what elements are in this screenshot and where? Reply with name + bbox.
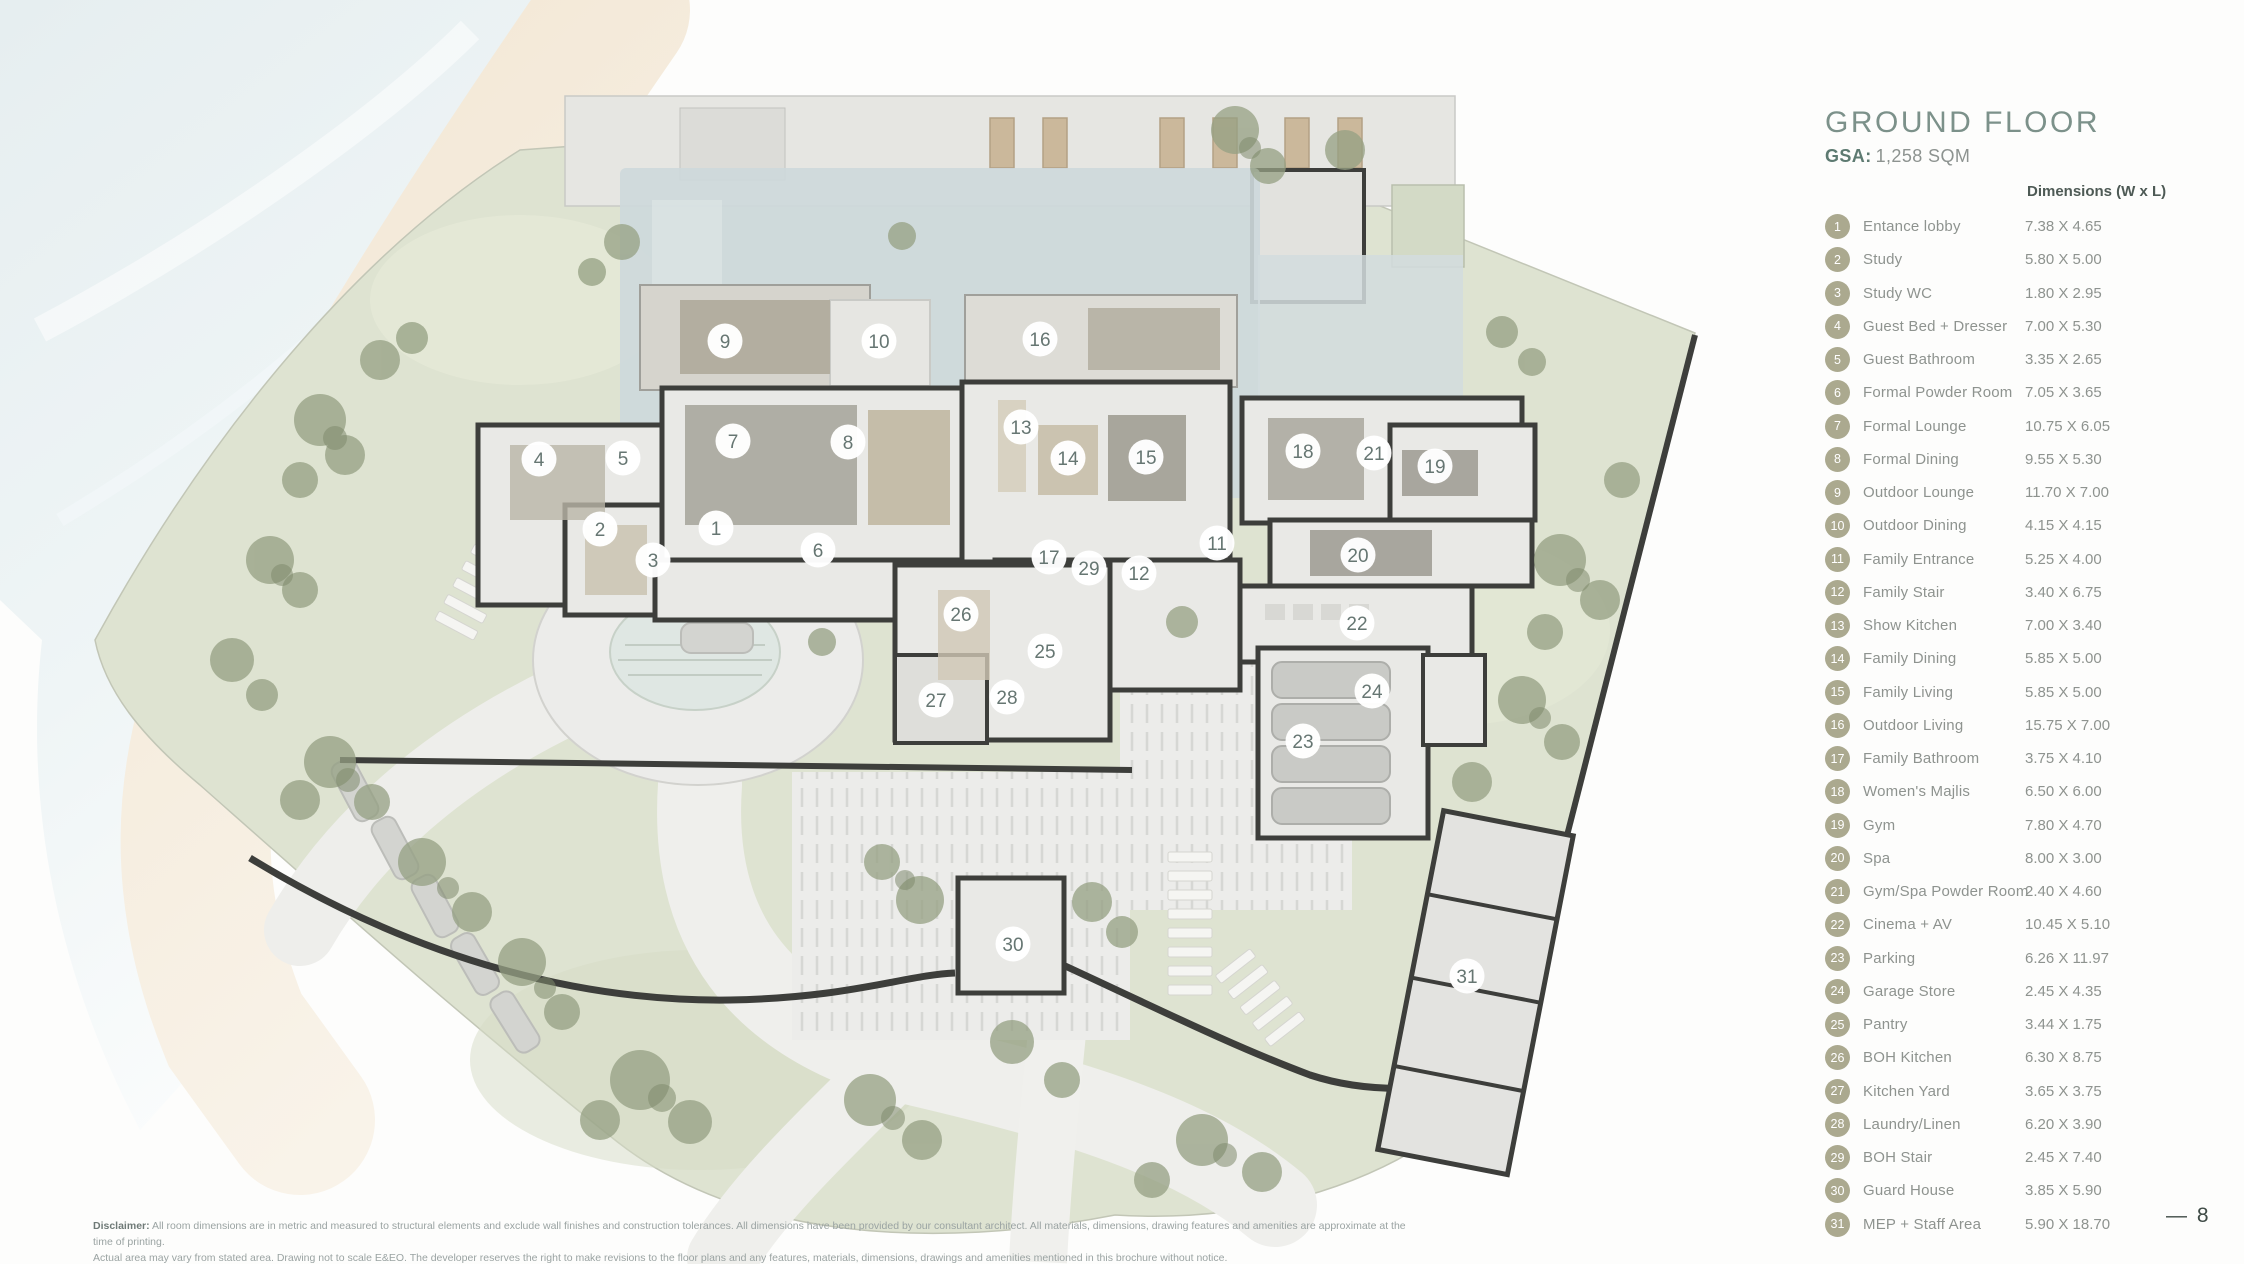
legend-room-number: 1 [1825,214,1850,239]
legend-room-number: 30 [1825,1178,1850,1203]
plan-room-marker-number: 23 [1292,732,1313,753]
legend-room-number: 8 [1825,447,1850,472]
legend-room-dimensions: 6.30 X 8.75 [2025,1049,2102,1066]
legend-room-name: Outdoor Lounge [1863,484,2025,501]
legend-room-number: 3 [1825,281,1850,306]
legend-room-number: 2 [1825,247,1850,272]
plan-room-marker-number: 10 [868,332,889,353]
legend-room-name: Women's Majlis [1863,783,2025,800]
legend-room-dimensions: 3.85 X 5.90 [2025,1182,2102,1199]
legend-row: 10Outdoor Dining4.15 X 4.15 [1825,509,2235,542]
plan-room-marker-number: 8 [843,433,854,454]
legend-room-dimensions: 2.45 X 7.40 [2025,1149,2102,1166]
legend-row: 5Guest Bathroom3.35 X 2.65 [1825,343,2235,376]
legend-room-name: MEP + Staff Area [1863,1216,2025,1233]
legend-room-number: 5 [1825,347,1850,372]
legend-row: 22Cinema + AV10.45 X 5.10 [1825,908,2235,941]
plan-room-marker-number: 30 [1002,935,1023,956]
plan-room-marker-number: 18 [1292,442,1313,463]
plan-room-marker-number: 9 [720,332,731,353]
legend-room-name: Guest Bed + Dresser [1863,318,2025,335]
legend-room-dimensions: 5.80 X 5.00 [2025,251,2102,268]
legend-row: 1Entance lobby7.38 X 4.65 [1825,210,2235,243]
legend-room-number: 4 [1825,314,1850,339]
legend-room-name: Cinema + AV [1863,916,2025,933]
legend-room-dimensions: 7.80 X 4.70 [2025,817,2102,834]
legend-room-number: 21 [1825,879,1850,904]
legend-room-dimensions: 5.90 X 18.70 [2025,1216,2110,1233]
gsa-line: GSA:1,258 SQM [1825,146,1970,167]
legend-row: 30Guard House3.85 X 5.90 [1825,1174,2235,1207]
plan-room-marker-number: 21 [1363,444,1384,465]
legend-room-name: BOH Kitchen [1863,1049,2025,1066]
legend-room-name: Formal Dining [1863,451,2025,468]
legend-room-number: 29 [1825,1145,1850,1170]
legend-room-name: Study [1863,251,2025,268]
legend-room-number: 10 [1825,513,1850,538]
legend-row: 20Spa8.00 X 3.00 [1825,842,2235,875]
legend-room-name: Spa [1863,850,2025,867]
legend-room-dimensions: 10.75 X 6.05 [2025,418,2110,435]
plan-room-marker-number: 6 [813,541,824,562]
legend-room-dimensions: 3.44 X 1.75 [2025,1016,2102,1033]
legend-room-name: Kitchen Yard [1863,1083,2025,1100]
legend-room-name: Pantry [1863,1016,2025,1033]
legend-row: 24Garage Store2.45 X 4.35 [1825,975,2235,1008]
plan-room-marker-number: 31 [1456,967,1477,988]
page-number: — 8 [2166,1204,2211,1228]
legend-room-name: Family Dining [1863,650,2025,667]
legend-room-name: Guard House [1863,1182,2025,1199]
legend-room-dimensions: 8.00 X 3.00 [2025,850,2102,867]
legend-row: 13Show Kitchen7.00 X 3.40 [1825,609,2235,642]
legend-room-dimensions: 2.40 X 4.60 [2025,883,2102,900]
legend-room-dimensions: 3.35 X 2.65 [2025,351,2102,368]
legend-row: 2Study5.80 X 5.00 [1825,243,2235,276]
gsa-value: 1,258 SQM [1876,146,1971,166]
legend-room-name: Formal Powder Room [1863,384,2025,401]
gsa-label: GSA: [1825,146,1872,166]
legend-room-dimensions: 1.80 X 2.95 [2025,285,2102,302]
legend-room-number: 18 [1825,779,1850,804]
legend-room-name: Formal Lounge [1863,418,2025,435]
legend-room-name: Family Bathroom [1863,750,2025,767]
legend-row: 16Outdoor Living15.75 X 7.00 [1825,709,2235,742]
legend-row: 19Gym7.80 X 4.70 [1825,809,2235,842]
plan-room-marker-number: 2 [595,520,606,541]
page-title: GROUND FLOOR [1825,106,2100,140]
legend-row: 9Outdoor Lounge11.70 X 7.00 [1825,476,2235,509]
plan-room-marker-number: 7 [728,432,739,453]
legend-panel: GROUND FLOOR GSA:1,258 SQM Dimensions (W… [1825,0,2235,1264]
legend-room-name: Family Stair [1863,584,2025,601]
legend-room-number: 9 [1825,480,1850,505]
legend-room-number: 11 [1825,547,1850,572]
legend-room-name: Gym/Spa Powder Room [1863,883,2025,900]
legend-room-dimensions: 5.85 X 5.00 [2025,650,2102,667]
legend-room-dimensions: 15.75 X 7.00 [2025,717,2110,734]
plan-room-marker-number: 3 [648,551,659,572]
legend-room-number: 20 [1825,846,1850,871]
legend-room-name: Study WC [1863,285,2025,302]
plan-room-marker-number: 4 [534,450,545,471]
legend-room-number: 15 [1825,680,1850,705]
legend-room-number: 16 [1825,713,1850,738]
disclaimer-line2: Actual area may vary from stated area. D… [93,1252,1227,1264]
plan-room-marker-number: 5 [618,449,629,470]
legend-row: 6Formal Powder Room7.05 X 3.65 [1825,376,2235,409]
legend-row: 26BOH Kitchen6.30 X 8.75 [1825,1041,2235,1074]
legend-room-dimensions: 5.25 X 4.00 [2025,551,2102,568]
legend-room-dimensions: 7.38 X 4.65 [2025,218,2102,235]
legend-room-name: Entance lobby [1863,218,2025,235]
legend-row: 18Women's Majlis6.50 X 6.00 [1825,775,2235,808]
legend-room-dimensions: 3.40 X 6.75 [2025,584,2102,601]
legend-row: 28Laundry/Linen6.20 X 3.90 [1825,1108,2235,1141]
legend-room-dimensions: 7.00 X 5.30 [2025,318,2102,335]
legend-row: 29BOH Stair2.45 X 7.40 [1825,1141,2235,1174]
plan-room-marker-number: 29 [1078,559,1099,580]
legend-room-number: 7 [1825,414,1850,439]
legend-room-dimensions: 7.05 X 3.65 [2025,384,2102,401]
legend-row: 11Family Entrance5.25 X 4.00 [1825,543,2235,576]
legend-room-name: BOH Stair [1863,1149,2025,1166]
legend-room-name: Laundry/Linen [1863,1116,2025,1133]
plan-room-marker-number: 20 [1347,546,1368,567]
legend-rows: 1Entance lobby7.38 X 4.652Study5.80 X 5.… [1825,210,2235,1241]
legend-room-number: 17 [1825,746,1850,771]
plan-room-marker-number: 27 [925,691,946,712]
legend-room-number: 6 [1825,380,1850,405]
legend-room-dimensions: 3.75 X 4.10 [2025,750,2102,767]
legend-room-name: Guest Bathroom [1863,351,2025,368]
legend-room-number: 25 [1825,1012,1850,1037]
plan-room-marker-number: 16 [1029,330,1050,351]
legend-room-dimensions: 4.15 X 4.15 [2025,517,2102,534]
legend-room-dimensions: 6.50 X 6.00 [2025,783,2102,800]
legend-room-name: Family Living [1863,684,2025,701]
legend-room-name: Family Entrance [1863,551,2025,568]
legend-row: 3Study WC1.80 X 2.95 [1825,277,2235,310]
legend-room-number: 19 [1825,813,1850,838]
legend-row: 23Parking6.26 X 11.97 [1825,942,2235,975]
legend-room-dimensions: 5.85 X 5.00 [2025,684,2102,701]
plan-room-marker-number: 14 [1057,449,1079,470]
legend-room-dimensions: 11.70 X 7.00 [2025,484,2109,501]
legend-room-name: Outdoor Living [1863,717,2025,734]
plan-room-marker-number: 26 [950,605,971,626]
legend-room-number: 27 [1825,1079,1850,1104]
legend-room-number: 14 [1825,646,1850,671]
plan-room-marker-number: 13 [1010,418,1031,439]
legend-room-number: 22 [1825,912,1850,937]
dimensions-column-header: Dimensions (W x L) [2027,183,2166,200]
plan-room-marker-number: 11 [1207,534,1227,555]
legend-room-dimensions: 2.45 X 4.35 [2025,983,2102,1000]
legend-room-number: 24 [1825,979,1850,1004]
sun-loungers [990,118,1362,168]
legend-room-name: Outdoor Dining [1863,517,2025,534]
legend-row: 14Family Dining5.85 X 5.00 [1825,642,2235,675]
legend-room-number: 23 [1825,946,1850,971]
plan-room-marker-number: 12 [1128,564,1149,585]
legend-row: 17Family Bathroom3.75 X 4.10 [1825,742,2235,775]
legend-room-dimensions: 3.65 X 3.75 [2025,1083,2102,1100]
legend-room-name: Garage Store [1863,983,2025,1000]
plan-room-marker-number: 25 [1034,642,1055,663]
legend-room-number: 28 [1825,1112,1850,1137]
legend-room-dimensions: 6.20 X 3.90 [2025,1116,2102,1133]
legend-room-dimensions: 9.55 X 5.30 [2025,451,2102,468]
brochure-page: 1234567891011121314151617181920212223242… [0,0,2244,1264]
plan-room-marker-number: 17 [1038,548,1059,569]
legend-room-dimensions: 6.26 X 11.97 [2025,950,2109,967]
legend-room-number: 31 [1825,1212,1850,1237]
plan-room-marker-number: 22 [1346,614,1367,635]
legend-row: 25Pantry3.44 X 1.75 [1825,1008,2235,1041]
disclaimer-line1: All room dimensions are in metric and me… [93,1220,1406,1248]
plan-room-marker-number: 28 [996,688,1017,709]
disclaimer: Disclaimer: All room dimensions are in m… [93,1218,1423,1264]
plan-room-marker-number: 1 [711,519,722,540]
legend-row: 12Family Stair3.40 X 6.75 [1825,576,2235,609]
legend-room-number: 12 [1825,580,1850,605]
legend-room-number: 13 [1825,613,1850,638]
plan-room-marker-number: 15 [1135,448,1156,469]
plan-room-marker-number: 19 [1424,457,1445,478]
legend-row: 21Gym/Spa Powder Room2.40 X 4.60 [1825,875,2235,908]
legend-room-dimensions: 7.00 X 3.40 [2025,617,2102,634]
legend-room-name: Parking [1863,950,2025,967]
legend-room-dimensions: 10.45 X 5.10 [2025,916,2110,933]
legend-row: 7Formal Lounge10.75 X 6.05 [1825,410,2235,443]
plan-room-marker-number: 24 [1361,682,1383,703]
legend-row: 8Formal Dining9.55 X 5.30 [1825,443,2235,476]
disclaimer-label: Disclaimer: [93,1220,150,1232]
legend-room-name: Gym [1863,817,2025,834]
legend-room-name: Show Kitchen [1863,617,2025,634]
legend-row: 15Family Living5.85 X 5.00 [1825,676,2235,709]
legend-row: 27Kitchen Yard3.65 X 3.75 [1825,1075,2235,1108]
legend-room-number: 26 [1825,1045,1850,1070]
legend-row: 4Guest Bed + Dresser7.00 X 5.30 [1825,310,2235,343]
